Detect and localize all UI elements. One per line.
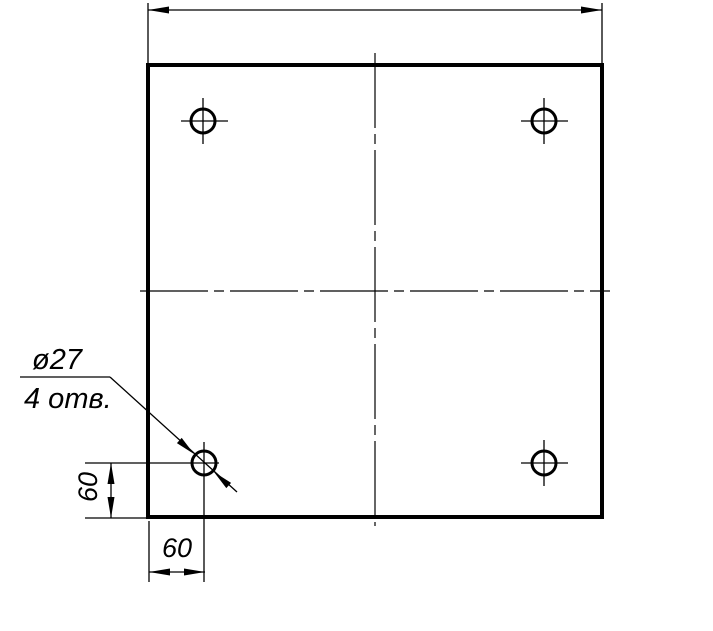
hole-diameter-label: ø27 [32,344,84,376]
top-dim-arrow-left [148,7,169,14]
drawing-canvas: 60 60 ø27 4 отв. [0,0,713,631]
vert-dim-arrow-top [108,463,115,484]
horiz-dim-arrow-right [184,569,205,576]
top-dim-arrow-right [581,7,602,14]
hole-count-label: 4 отв. [24,383,112,415]
vert-dim-arrow-bottom [108,497,115,518]
horiz-dim-arrow-left [149,569,170,576]
technical-drawing: 60 60 ø27 4 отв. [0,0,713,631]
horiz-dim-label: 60 [162,533,192,563]
leader-arrow-lower [214,472,231,488]
vert-dim-label: 60 [73,472,103,502]
